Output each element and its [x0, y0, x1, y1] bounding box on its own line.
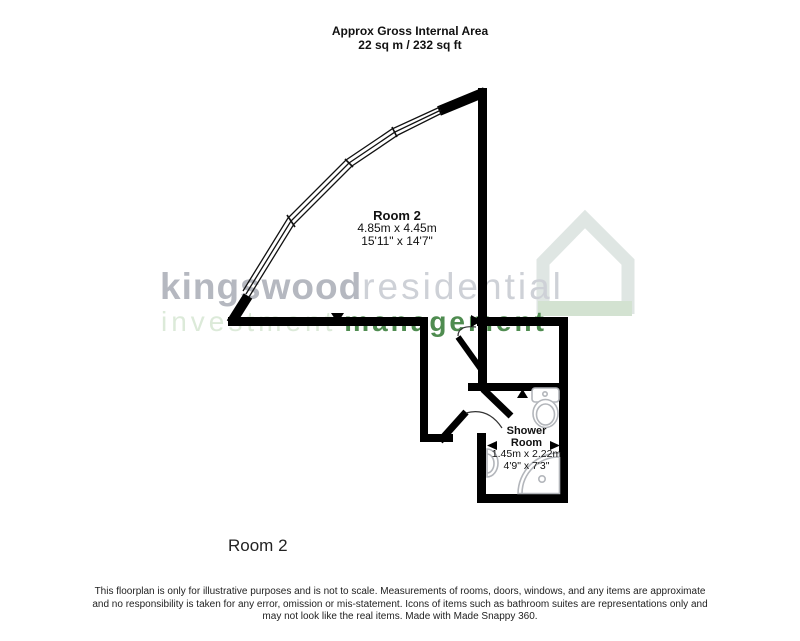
outer-right-wall [559, 317, 568, 503]
header-title: Approx Gross Internal Area [210, 25, 610, 39]
disclaimer-text: This floorplan is only for illustrative … [0, 586, 800, 624]
window-line-outer [243, 107, 440, 291]
shower-room-metric-dims: 1.45m x 2.22m [466, 449, 587, 461]
toilet-icon [532, 388, 559, 428]
shower-room-label-block: Shower Room 1.45m x 2.22m 4'9" x 7'3" [466, 426, 587, 472]
vestibule-top-wall [477, 317, 568, 326]
header-area-value: 22 sq m / 232 sq ft [210, 39, 610, 53]
window-line-middle [246, 110, 441, 294]
shower-bottom-wall [477, 494, 568, 503]
disclaimer-line2: and no responsibility is taken for any e… [0, 599, 800, 612]
window-wall [243, 107, 442, 297]
shower-room-name-line1: Shower [466, 426, 587, 438]
room2-label-block: Room 2 4.85m x 4.45m 15'11" x 14'7" [297, 209, 497, 248]
disclaimer-line3: may not look like the real items. Made w… [0, 611, 800, 624]
room2-bottom-wall [228, 317, 428, 326]
room2-imperial-dims: 15'11" x 14'7" [297, 235, 497, 248]
entry-door-arc [458, 327, 476, 336]
window-line-inner [249, 113, 442, 297]
shower-room-imperial-dims: 4'9" x 7'3" [466, 461, 587, 473]
floorplan-page: { "header": { "line1": "Approx Gross Int… [0, 0, 800, 641]
corridor-left-wall [420, 326, 428, 442]
shower-door-jamb [483, 389, 511, 416]
disclaimer-line1: This floorplan is only for illustrative … [0, 586, 800, 599]
gross-internal-area-header: Approx Gross Internal Area 22 sq m / 232… [210, 25, 610, 52]
floor-title: Room 2 [228, 536, 288, 556]
floorplan-drawing [0, 0, 800, 641]
